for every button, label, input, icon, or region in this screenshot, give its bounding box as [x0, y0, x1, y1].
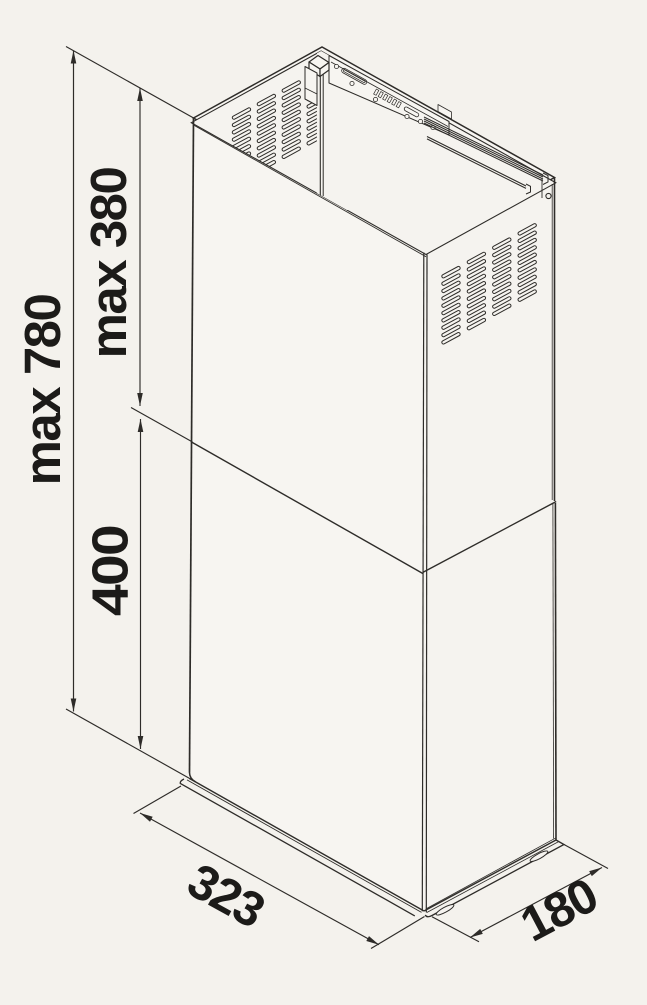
svg-text:max 780: max 780: [14, 294, 71, 485]
svg-text:max 380: max 380: [80, 167, 137, 358]
svg-text:400: 400: [82, 526, 139, 616]
